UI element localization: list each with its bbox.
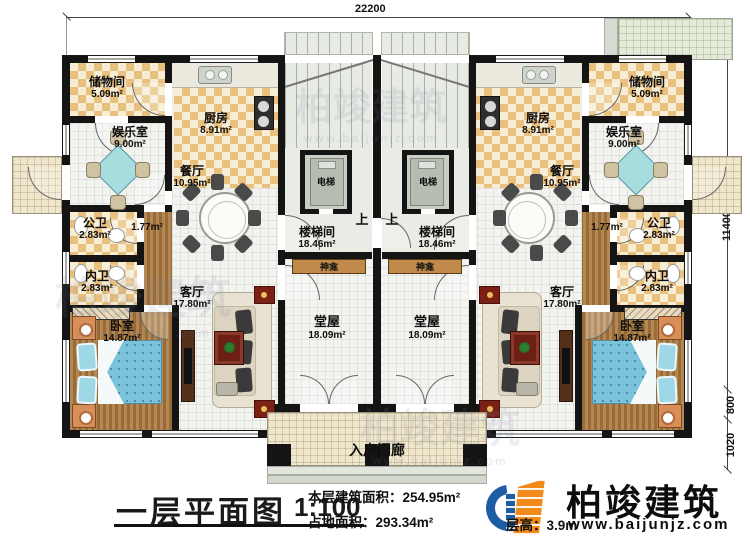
wall bbox=[602, 430, 612, 438]
end-table-decor bbox=[487, 292, 493, 298]
room-label-storage: 储物间5.09m² bbox=[629, 76, 665, 102]
room-label-bedroom: 卧室14.87m² bbox=[103, 320, 140, 346]
nightstand-lamp bbox=[661, 411, 675, 425]
room-label-stairwell: 楼梯间18.46m² bbox=[298, 226, 335, 252]
label-up: 上 bbox=[385, 209, 398, 228]
wall bbox=[610, 205, 617, 218]
elevator-panel bbox=[418, 161, 436, 169]
chair bbox=[493, 210, 506, 226]
chair bbox=[530, 245, 543, 261]
pillow bbox=[656, 375, 677, 404]
sink-basin bbox=[539, 70, 549, 80]
stove-burner bbox=[485, 116, 496, 127]
room-label-dining: 餐厅10.95m² bbox=[173, 165, 210, 191]
wall bbox=[610, 242, 617, 265]
wall bbox=[381, 404, 396, 412]
room-label-hall: 堂屋18.09m² bbox=[308, 315, 345, 342]
wall bbox=[582, 205, 589, 212]
wall bbox=[674, 430, 692, 438]
stat-land-area: 占地面积：293.34m² bbox=[308, 511, 433, 531]
wall bbox=[617, 255, 692, 262]
window bbox=[496, 430, 602, 438]
wall bbox=[614, 205, 692, 212]
room-label-hall: 堂屋18.09m² bbox=[408, 315, 445, 342]
wall bbox=[582, 63, 589, 83]
window bbox=[684, 340, 692, 402]
chair bbox=[530, 174, 543, 190]
wall bbox=[382, 252, 476, 259]
wall bbox=[564, 55, 619, 63]
window bbox=[612, 430, 674, 438]
room-label-entertainment: 娱乐室9.00m² bbox=[606, 126, 642, 152]
pillow bbox=[656, 342, 678, 371]
wall bbox=[469, 259, 476, 265]
end-table-decor bbox=[487, 406, 493, 412]
tv-icon bbox=[562, 348, 570, 384]
window bbox=[496, 55, 564, 63]
stat-floor-height: 层高：3.9m bbox=[506, 514, 577, 534]
wall bbox=[373, 248, 381, 412]
wall bbox=[659, 116, 692, 123]
wall bbox=[487, 430, 496, 438]
stove-burner bbox=[485, 101, 496, 112]
room-label-bedroom: 卧室14.87m² bbox=[613, 320, 650, 346]
stairs-upper-flight bbox=[381, 32, 470, 55]
floor-plan-canvas: 22200 11400 800 1020 bbox=[0, 0, 750, 541]
plant-icon bbox=[519, 342, 530, 353]
sink-basin bbox=[526, 70, 536, 80]
wall bbox=[373, 55, 381, 218]
wall bbox=[469, 300, 476, 412]
room-label-entertainment: 娱乐室9.00m² bbox=[112, 126, 148, 152]
window bbox=[684, 125, 692, 155]
room-label-public-wc: 公卫2.83m² bbox=[79, 217, 111, 243]
wall bbox=[684, 55, 692, 125]
chair bbox=[604, 162, 619, 178]
room-label-hallway: 1.77m² bbox=[131, 222, 163, 235]
wall bbox=[575, 305, 582, 438]
stairs-treads bbox=[382, 63, 469, 148]
window bbox=[619, 55, 666, 63]
label-up: 上 bbox=[355, 209, 368, 228]
room-label-stairwell: 楼梯间18.46m² bbox=[418, 226, 455, 252]
porch-step bbox=[267, 466, 487, 475]
wall bbox=[582, 116, 589, 191]
room-label-kitchen: 厨房8.91m² bbox=[200, 112, 232, 138]
room-label-elevator: 电梯 bbox=[419, 175, 437, 188]
label-shrine: 神龛 bbox=[416, 260, 434, 273]
room-label-kitchen: 厨房8.91m² bbox=[522, 112, 554, 138]
chair bbox=[628, 195, 644, 210]
room-label-private-wc: 内卫2.83m² bbox=[641, 270, 673, 296]
armchair bbox=[516, 382, 538, 396]
porch-column bbox=[267, 444, 291, 466]
chair bbox=[565, 210, 578, 226]
room-label-living: 客厅17.80m² bbox=[173, 286, 210, 312]
label-shrine: 神龛 bbox=[320, 260, 338, 273]
dining-table-ring bbox=[508, 201, 546, 239]
room-label-elevator: 电梯 bbox=[317, 175, 335, 188]
room-label-living: 客厅17.80m² bbox=[543, 286, 580, 312]
wall bbox=[684, 284, 692, 340]
porch-step bbox=[267, 475, 487, 484]
window bbox=[684, 252, 692, 284]
room-label-storage: 储物间5.09m² bbox=[89, 76, 125, 102]
wall bbox=[684, 155, 692, 165]
label-entry-porch: 入户门廊 bbox=[349, 440, 405, 460]
brand-website: www.baijunjz.com bbox=[568, 516, 729, 533]
porch-column bbox=[463, 444, 487, 466]
room-label-public-wc: 公卫2.83m² bbox=[643, 217, 675, 243]
chair bbox=[653, 162, 668, 178]
wall bbox=[469, 55, 476, 215]
room-label-private-wc: 内卫2.83m² bbox=[81, 270, 113, 296]
nightstand-lamp bbox=[661, 323, 675, 337]
elevator-door-gap bbox=[421, 209, 435, 214]
room-label-dining: 餐厅10.95m² bbox=[543, 165, 580, 191]
stat-floor-area: 本层建筑面积：254.95m² bbox=[308, 486, 460, 506]
room-label-hallway: 1.77m² bbox=[591, 222, 623, 235]
